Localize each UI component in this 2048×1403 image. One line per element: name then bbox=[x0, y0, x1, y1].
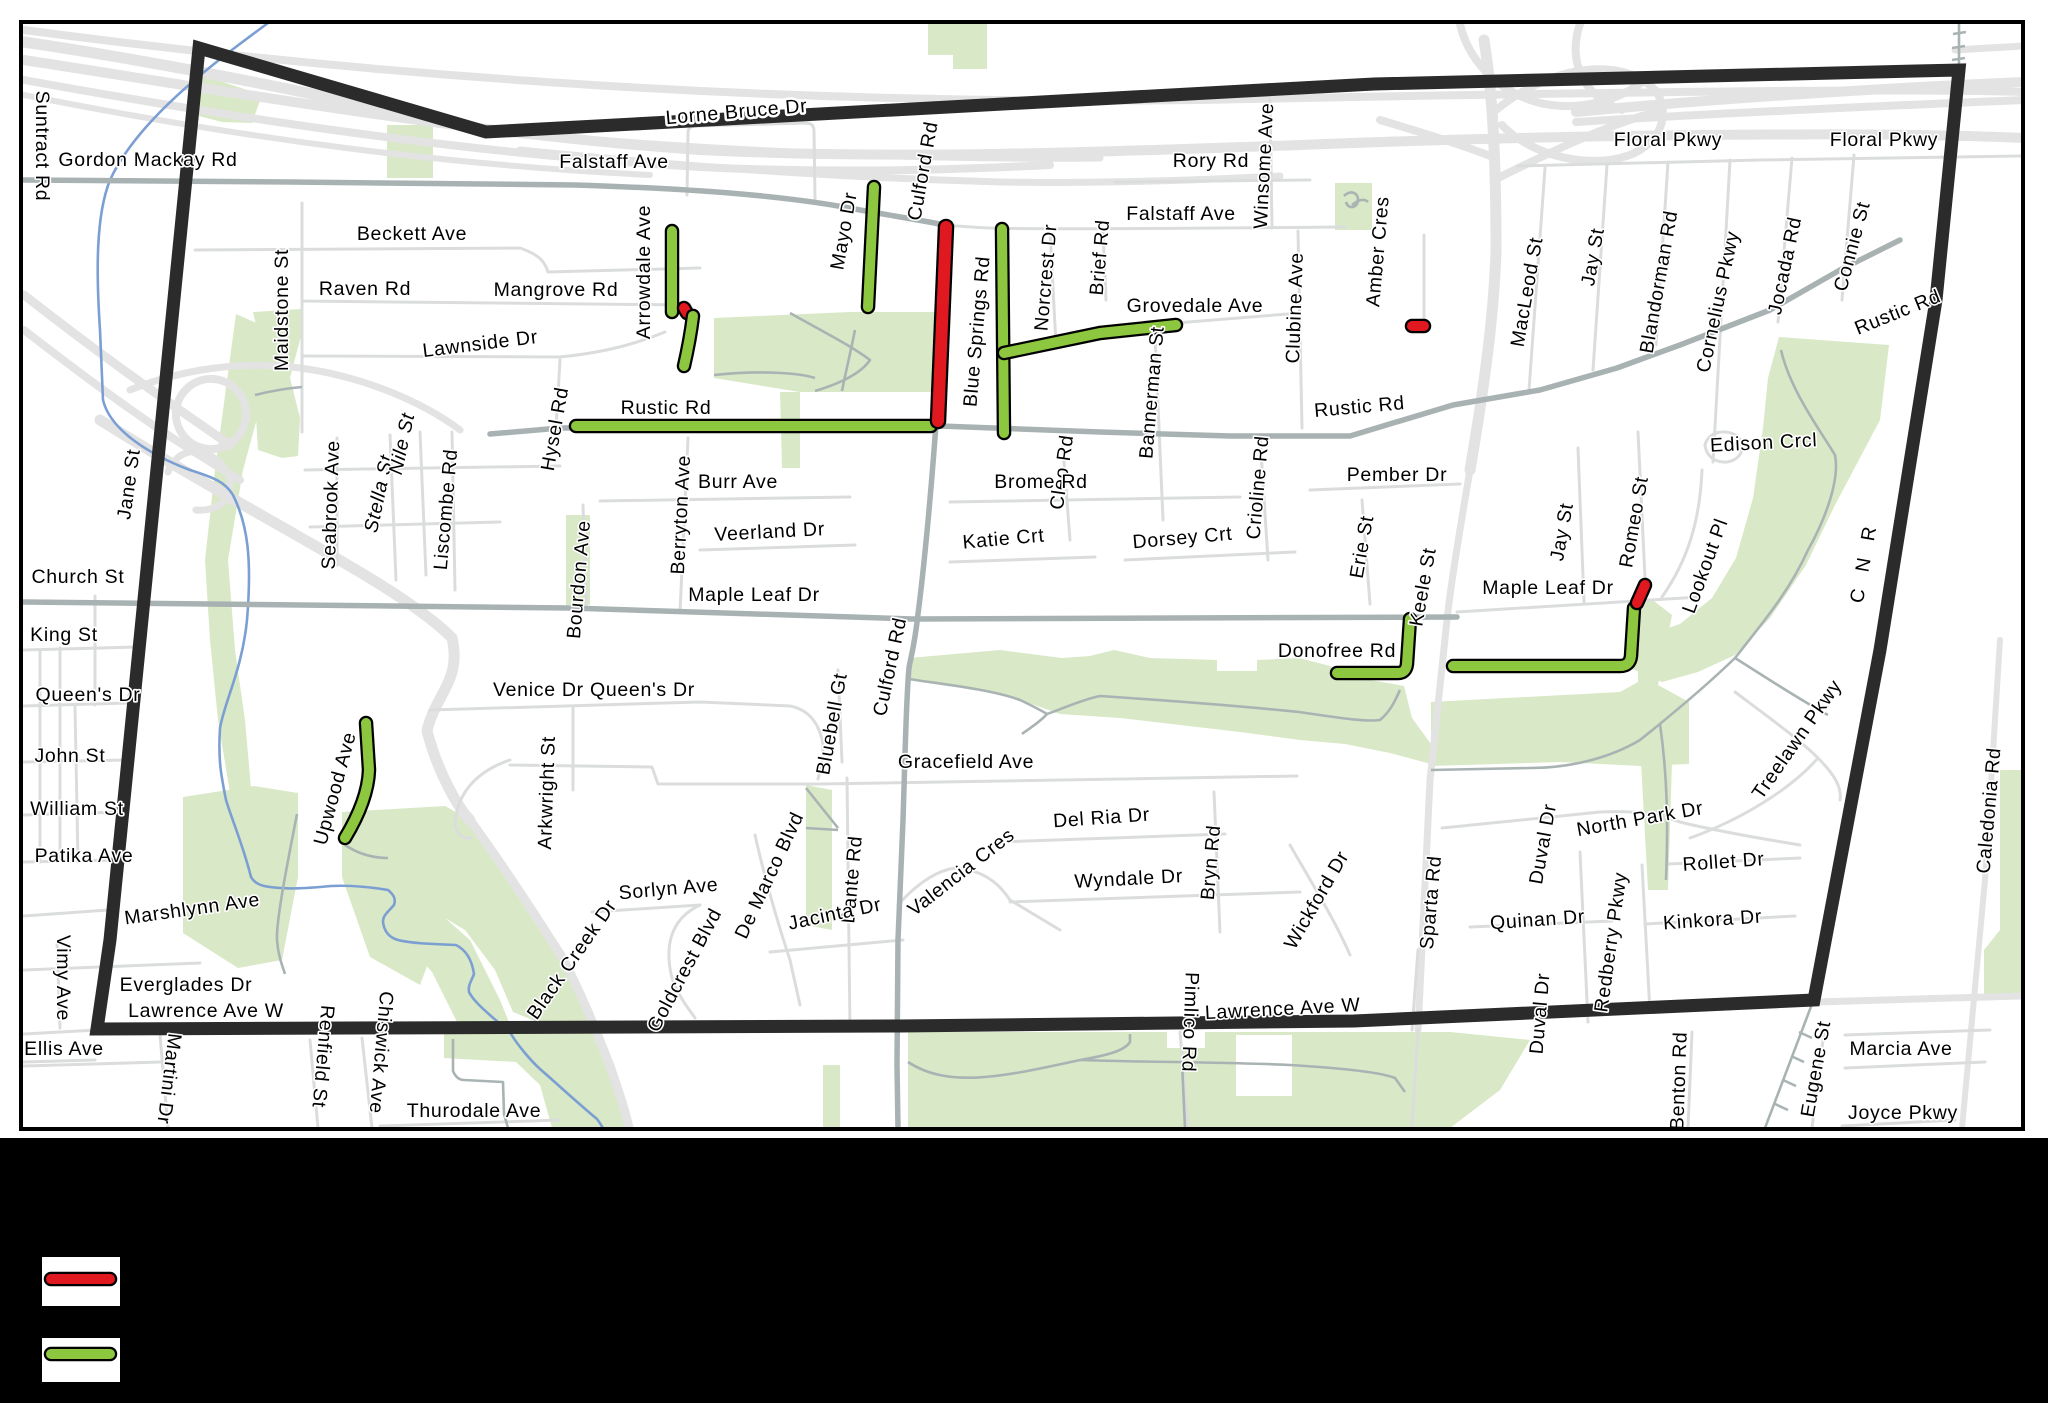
svg-text:Rory Rd: Rory Rd bbox=[1173, 150, 1249, 172]
svg-text:Gracefield Ave: Gracefield Ave bbox=[898, 751, 1034, 773]
svg-text:Ellis Ave: Ellis Ave bbox=[24, 1038, 104, 1060]
svg-text:Vimy Ave: Vimy Ave bbox=[52, 935, 74, 1021]
svg-text:Church St: Church St bbox=[31, 566, 124, 588]
svg-text:Floral Pkwy: Floral Pkwy bbox=[1614, 129, 1722, 151]
svg-text:Venice Dr Queen's Dr: Venice Dr Queen's Dr bbox=[493, 679, 695, 701]
svg-text:Clubine Ave: Clubine Ave bbox=[1282, 252, 1308, 364]
svg-text:William St: William St bbox=[30, 798, 124, 820]
svg-text:Arkwright St: Arkwright St bbox=[534, 736, 560, 850]
svg-text:Grovedale Ave: Grovedale Ave bbox=[1127, 295, 1264, 317]
svg-text:Floral Pkwy: Floral Pkwy bbox=[1830, 129, 1938, 151]
svg-text:Lawrence Ave W: Lawrence Ave W bbox=[128, 1000, 284, 1022]
svg-text:Maidstone St: Maidstone St bbox=[271, 249, 293, 371]
svg-text:Falstaff Ave: Falstaff Ave bbox=[1126, 203, 1236, 225]
svg-text:Maple Leaf Dr: Maple Leaf Dr bbox=[688, 584, 820, 606]
svg-text:Pimlico Rd: Pimlico Rd bbox=[1177, 972, 1202, 1073]
svg-text:Maple Leaf Dr: Maple Leaf Dr bbox=[1482, 577, 1614, 599]
svg-text:Mangrove Rd: Mangrove Rd bbox=[494, 279, 619, 301]
svg-text:John St: John St bbox=[34, 745, 105, 767]
svg-text:Everglades Dr: Everglades Dr bbox=[120, 974, 253, 996]
svg-text:Arrowdale Ave: Arrowdale Ave bbox=[633, 205, 655, 339]
svg-text:Joyce Pkwy: Joyce Pkwy bbox=[1848, 1102, 1958, 1124]
svg-text:Burr Ave: Burr Ave bbox=[698, 471, 778, 493]
svg-text:Benton Rd: Benton Rd bbox=[1666, 1031, 1691, 1130]
svg-text:Beckett Ave: Beckett Ave bbox=[357, 223, 467, 245]
svg-text:Raven Rd: Raven Rd bbox=[319, 278, 411, 300]
svg-text:Donofree Rd: Donofree Rd bbox=[1278, 640, 1396, 662]
svg-text:Patika Ave: Patika Ave bbox=[35, 845, 134, 867]
svg-text:Seabrook Ave: Seabrook Ave bbox=[318, 440, 345, 570]
svg-text:Queen's Dr: Queen's Dr bbox=[35, 684, 140, 706]
svg-text:Marcia Ave: Marcia Ave bbox=[1849, 1038, 1952, 1060]
svg-text:Falstaff Ave: Falstaff Ave bbox=[559, 151, 669, 173]
svg-text:Rustic Rd: Rustic Rd bbox=[621, 397, 712, 419]
svg-text:Gordon Mackay Rd: Gordon Mackay Rd bbox=[58, 149, 237, 171]
svg-text:Brome Rd: Brome Rd bbox=[994, 471, 1087, 493]
svg-text:King St: King St bbox=[30, 624, 98, 646]
svg-text:Thurodale Ave: Thurodale Ave bbox=[407, 1100, 542, 1122]
svg-text:Pember Dr: Pember Dr bbox=[1347, 464, 1448, 486]
svg-text:Suntract Rd: Suntract Rd bbox=[31, 91, 53, 202]
